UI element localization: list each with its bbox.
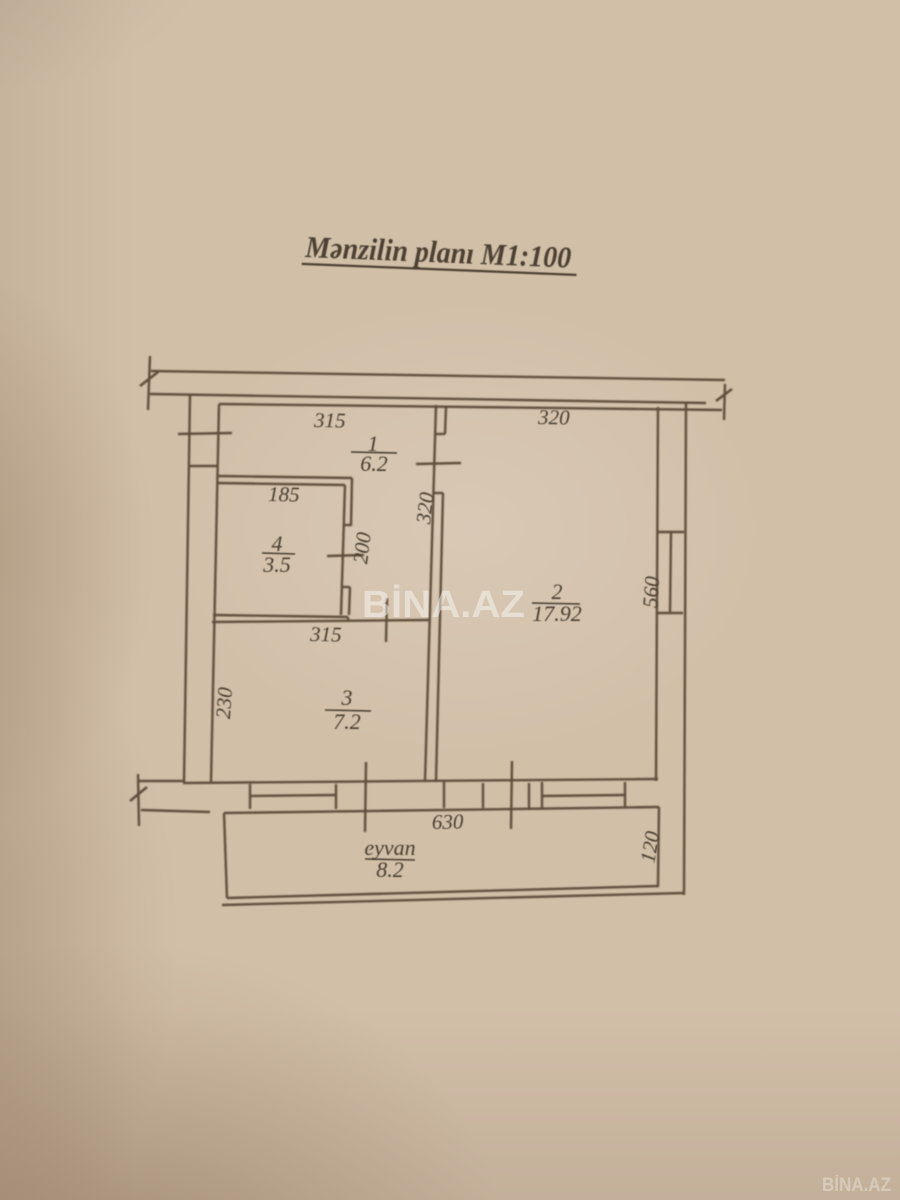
svg-text:BİNA.AZ: BİNA.AZ bbox=[362, 584, 525, 626]
svg-text:230: 230 bbox=[211, 686, 237, 720]
svg-text:6.2: 6.2 bbox=[360, 451, 388, 476]
svg-text:630: 630 bbox=[432, 809, 464, 834]
svg-text:185: 185 bbox=[268, 482, 300, 507]
svg-text:560: 560 bbox=[638, 575, 664, 609]
svg-text:3.5: 3.5 bbox=[262, 552, 291, 577]
svg-text:7.2: 7.2 bbox=[333, 709, 361, 734]
svg-text:120: 120 bbox=[635, 829, 664, 865]
svg-text:17.92: 17.92 bbox=[532, 601, 582, 626]
svg-text:Mənzilin planı M1:100: Mənzilin planı M1:100 bbox=[304, 229, 572, 275]
svg-text:315: 315 bbox=[313, 408, 346, 433]
svg-text:8.2: 8.2 bbox=[376, 857, 404, 882]
svg-text:315: 315 bbox=[309, 622, 342, 647]
svg-text:320: 320 bbox=[411, 490, 439, 526]
svg-text:200: 200 bbox=[348, 530, 376, 565]
svg-text:3: 3 bbox=[341, 685, 353, 710]
svg-text:BİNA.AZ: BİNA.AZ bbox=[822, 1175, 891, 1196]
svg-text:320: 320 bbox=[537, 405, 570, 430]
